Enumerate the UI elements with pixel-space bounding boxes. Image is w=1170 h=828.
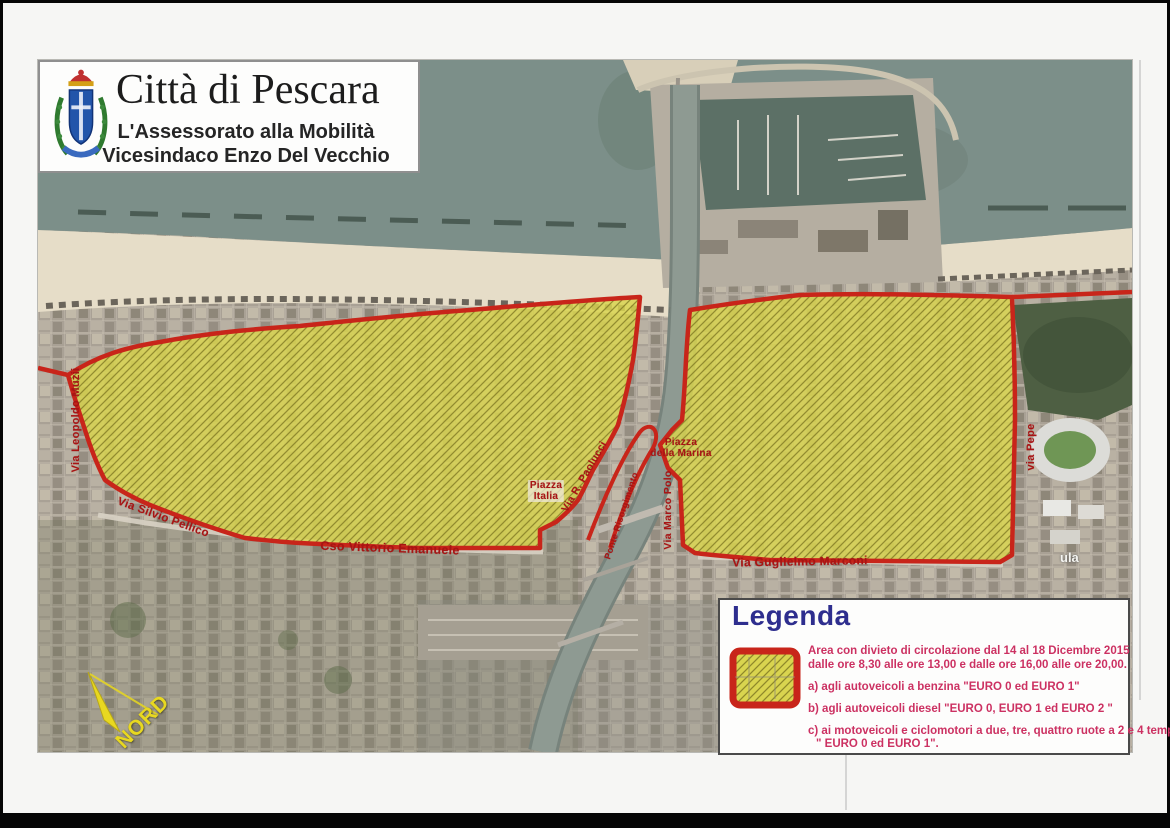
street-label-via-pepe: via Pepe	[1025, 423, 1037, 470]
header-subtitle-2: Vicesindaco Enzo Del Vecchio	[76, 144, 416, 168]
legend-item-c-1: c) ai motoveicoli e ciclomotori a due, t…	[808, 724, 1170, 738]
street-label-piazza-italia: Piazza Italia	[528, 480, 564, 502]
header-box: Città di Pescara L'Assessorato alla Mobi…	[38, 60, 420, 173]
legend-item-a: a) agli autoveicoli a benzina "EURO 0 ed…	[808, 680, 1080, 694]
legend-item-b: b) agli autoveicoli diesel "EURO 0, EURO…	[808, 702, 1113, 716]
street-label-via-leopoldo-muzii: Via Leopoldo Muzii	[70, 368, 82, 473]
scanned-notice-page: { "header": { "title": "Città di Pescara…	[0, 0, 1170, 828]
street-label-via-marco-polo: Via Marco Polo	[663, 470, 675, 549]
header-subtitle-1: L'Assessorato alla Mobilità	[76, 120, 416, 144]
legend-description-1: Area con divieto di circolazione dal 14 …	[808, 644, 1130, 658]
restricted-zone-swatch	[729, 647, 801, 709]
page-title: Città di Pescara	[116, 66, 416, 114]
legend-box: Legenda Area con divieto di circolazione…	[718, 598, 1130, 755]
restricted-zone-east	[660, 294, 1015, 562]
scan-edge-line	[1139, 60, 1141, 700]
legend-description-2: dalle ore 8,30 alle ore 13,00 e dalle or…	[808, 658, 1127, 672]
legend-title: Legenda	[732, 600, 851, 632]
legend-item-c-2: " EURO 0 ed EURO 1".	[816, 737, 939, 751]
street-label-via-guglielmo-marconi: Via Guglielmo Marconi	[732, 554, 868, 570]
street-label-piazza-della-marina: Piazza della Marina	[650, 437, 711, 459]
partial-street-label: ula	[1060, 550, 1079, 565]
